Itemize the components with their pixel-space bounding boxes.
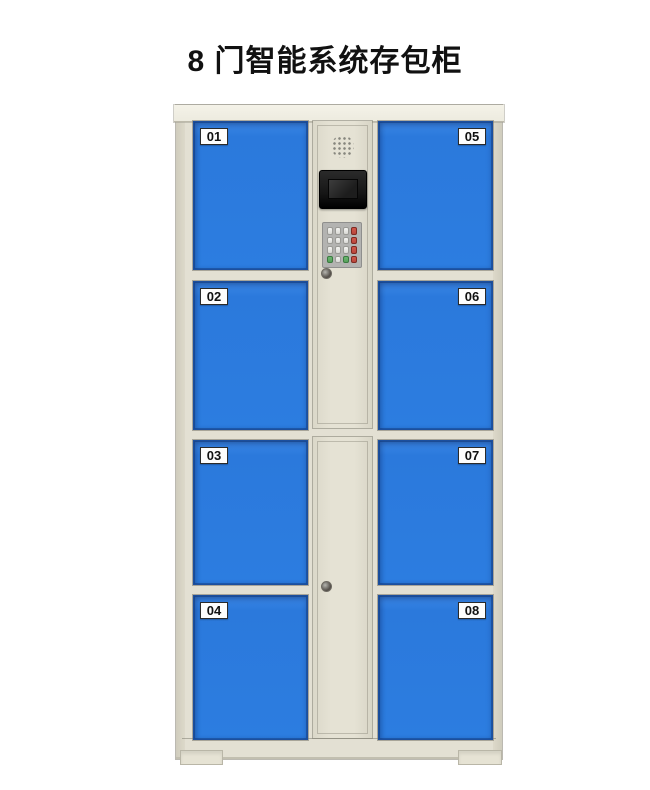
keypad-button-light [327,246,333,254]
locker-door-07: 07 [378,440,493,585]
door-number-label: 01 [200,128,228,145]
keypad-button-red [351,256,357,264]
keypad-button-light [343,227,349,235]
keyhole-upper-icon [321,268,332,279]
door-number-label: 04 [200,602,228,619]
product-image: 8 门智能系统存包柜 01 02 03 04 05 06 07 08 [0,0,650,790]
keypad-button-green [343,256,349,264]
service-door-lower [313,437,372,738]
door-number-label: 06 [458,288,486,305]
control-panel-door-upper [313,121,372,428]
cabinet-foot-right [458,750,502,765]
door-number-label: 03 [200,447,228,464]
locker-door-06: 06 [378,281,493,430]
display-screen-glass [328,179,358,199]
keypad-button-light [327,237,333,245]
locker-door-04: 04 [193,595,308,740]
keypad-button-light [335,227,341,235]
speaker-grille-icon [330,134,355,159]
door-number-label: 02 [200,288,228,305]
locker-door-08: 08 [378,595,493,740]
cabinet-right-side [493,121,502,757]
cabinet-top-band [174,105,504,122]
display-screen [319,170,367,209]
keypad-button-light [335,256,341,264]
keypad [322,222,362,268]
keypad-button-light [327,227,333,235]
locker-door-05: 05 [378,121,493,270]
keypad-button-red [351,227,357,235]
door-number-label: 05 [458,128,486,145]
keypad-button-light [343,246,349,254]
locker-door-03: 03 [193,440,308,585]
smart-locker-cabinet: 01 02 03 04 05 06 07 08 [176,105,502,759]
keypad-button-light [335,246,341,254]
cabinet-foot-left [180,750,223,765]
page-title: 8 门智能系统存包柜 [0,36,650,80]
door-number-label: 07 [458,447,486,464]
keypad-button-light [343,237,349,245]
door-number-label: 08 [458,602,486,619]
keypad-button-light [335,237,341,245]
keypad-button-green [327,256,333,264]
keypad-button-red [351,246,357,254]
keypad-button-red [351,237,357,245]
locker-door-01: 01 [193,121,308,270]
cabinet-left-side [176,121,185,757]
keyhole-lower-icon [321,581,332,592]
locker-door-02: 02 [193,281,308,430]
